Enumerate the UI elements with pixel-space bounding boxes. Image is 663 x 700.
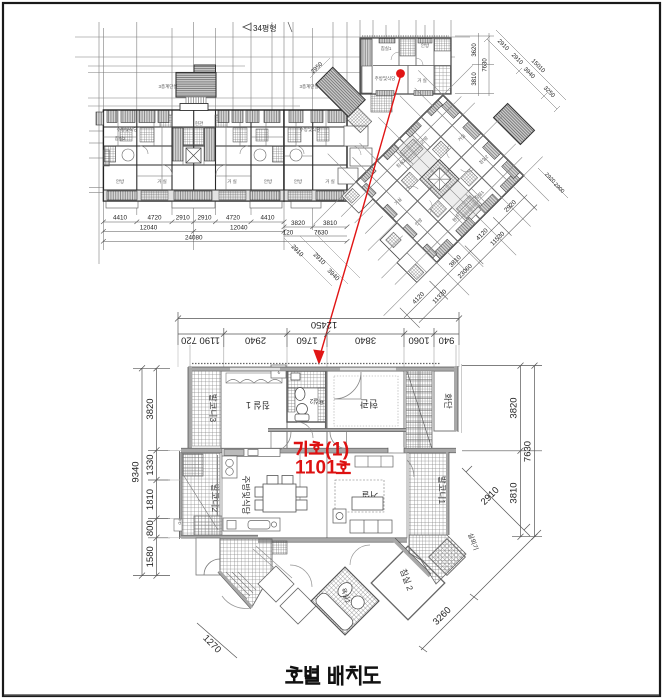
svg-text:현관: 현관 [360, 397, 378, 409]
svg-text:4410: 4410 [260, 215, 275, 222]
svg-text:3층계단실: 3층계단실 [158, 83, 177, 90]
svg-text:1190 720: 1190 720 [181, 335, 220, 346]
svg-text:현관: 현관 [195, 120, 203, 126]
svg-text:7630: 7630 [523, 441, 534, 462]
svg-text:안방: 안방 [264, 178, 272, 184]
svg-text:1330: 1330 [145, 454, 156, 475]
svg-text:3820: 3820 [509, 397, 520, 418]
svg-text:3820: 3820 [291, 220, 306, 227]
svg-text:1760: 1760 [296, 335, 317, 346]
svg-text:침실1: 침실1 [381, 45, 392, 51]
svg-text:2910: 2910 [197, 215, 212, 222]
svg-text:3810: 3810 [472, 72, 478, 86]
svg-text:욕실2: 욕실2 [309, 397, 324, 405]
svg-text:거 실: 거 실 [325, 178, 335, 185]
svg-text:4720: 4720 [147, 215, 162, 222]
svg-text:12450: 12450 [311, 319, 337, 330]
svg-text:800: 800 [145, 520, 156, 536]
svg-text:주방및식당: 주방및식당 [241, 475, 251, 514]
svg-text:1060: 1060 [408, 335, 429, 346]
svg-text:거 실: 거 실 [157, 178, 167, 185]
svg-text:3840: 3840 [355, 335, 376, 346]
svg-text:34평형: 34평형 [253, 23, 277, 33]
svg-text:침실2: 침실2 [115, 135, 126, 141]
svg-text:7630: 7630 [483, 58, 489, 72]
svg-text:주방및식당: 주방및식당 [375, 75, 396, 82]
svg-text:3층계단실: 3층계단실 [299, 83, 318, 90]
svg-text:주방및식당: 주방및식당 [300, 126, 321, 133]
svg-text:3620: 3620 [472, 43, 478, 57]
svg-text:4720: 4720 [226, 215, 241, 222]
svg-text:발코니1: 발코니1 [437, 476, 447, 504]
svg-text:3810: 3810 [323, 220, 338, 227]
svg-text:거 실: 거 실 [227, 178, 237, 185]
svg-text:안방: 안방 [294, 178, 302, 184]
svg-text:12040: 12040 [230, 225, 248, 232]
svg-text:침실 1: 침실 1 [246, 400, 270, 410]
svg-text:24080: 24080 [185, 235, 203, 242]
svg-text:4410: 4410 [113, 215, 128, 222]
svg-text:3810: 3810 [509, 482, 520, 503]
svg-text:FD: FD [178, 519, 183, 524]
svg-text:3820: 3820 [145, 398, 156, 419]
svg-text:발코니3: 발코니3 [208, 394, 218, 422]
svg-text:120: 120 [283, 230, 294, 237]
svg-text:화단: 화단 [443, 393, 453, 409]
svg-text:안방: 안방 [421, 42, 429, 48]
svg-text:12040: 12040 [140, 225, 158, 232]
svg-text:거 실: 거 실 [417, 77, 427, 84]
svg-text:1580: 1580 [145, 546, 156, 567]
svg-text:2910: 2910 [176, 215, 191, 222]
svg-text:1810: 1810 [145, 489, 156, 510]
svg-text:2940: 2940 [245, 335, 266, 346]
svg-text:주방및식당: 주방및식당 [117, 126, 138, 133]
svg-text:940: 940 [439, 335, 455, 346]
svg-text:9340: 9340 [131, 461, 142, 482]
svg-text:1101: 1101 [295, 458, 337, 479]
svg-text:발코니2: 발코니2 [210, 484, 220, 512]
svg-text:안방: 안방 [116, 178, 124, 184]
svg-text:7630: 7630 [314, 230, 329, 237]
